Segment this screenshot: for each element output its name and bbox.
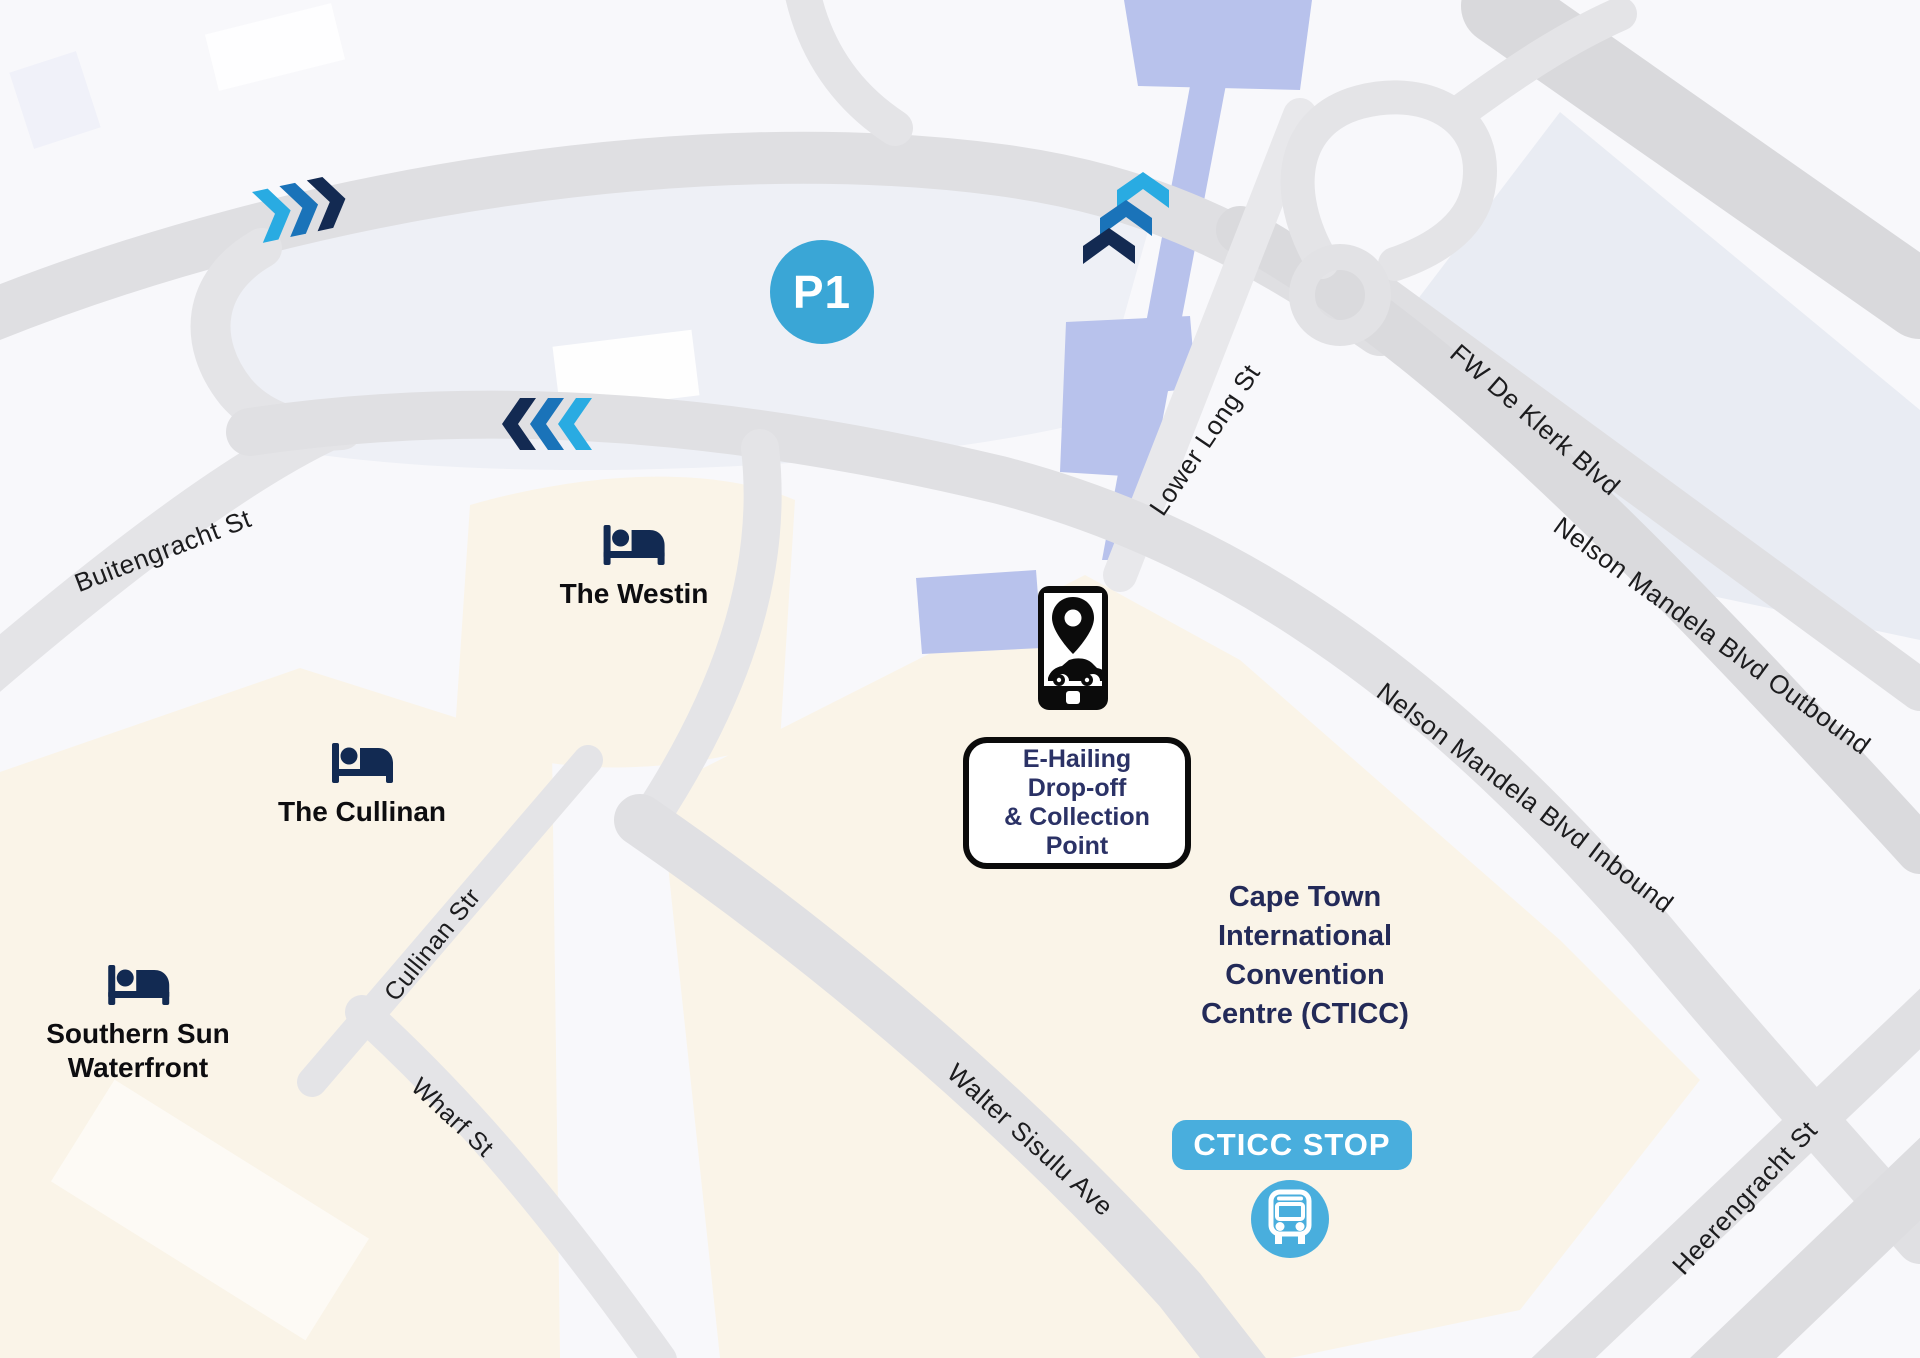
hotel-label-line2: Waterfront: [46, 1051, 230, 1085]
cticc-stop-label: CTICC STOP: [1193, 1127, 1390, 1163]
ehailing-line2: Drop-off: [1004, 774, 1150, 803]
parcel-building-a: [205, 3, 345, 91]
cticc-line4: Centre (CTICC): [1201, 995, 1409, 1034]
bed-icon: [328, 740, 396, 786]
ehailing-line3: & Collection: [1004, 803, 1150, 832]
road-top-stub: [800, 0, 895, 128]
cticc-line2: International: [1201, 917, 1409, 956]
ehailing-callout: E-Hailing Drop-off & Collection Point: [963, 737, 1191, 869]
smartphone-pin-car-icon: [1035, 583, 1111, 713]
parcel-building-b: [9, 51, 100, 149]
cticc-area-label: Cape Town International Convention Centr…: [1201, 878, 1409, 1034]
cticc-line3: Convention: [1201, 956, 1409, 995]
bed-icon: [104, 962, 172, 1008]
bus-icon: [1251, 1180, 1329, 1258]
bed-icon: [600, 522, 668, 568]
hotel-marker-the-westin[interactable]: The Westin: [560, 522, 709, 611]
hotel-label-line1: Southern Sun: [46, 1017, 230, 1051]
ehailing-line1: E-Hailing: [1004, 745, 1150, 774]
cticc-stop-badge[interactable]: CTICC STOP: [1172, 1120, 1412, 1170]
hotel-marker-southern-sun[interactable]: Southern Sun Waterfront: [46, 962, 230, 1085]
hotel-label: The Cullinan: [278, 795, 446, 829]
cticc-map-page: { "map": { "parking_label": "P1", "bus_s…: [0, 0, 1920, 1358]
hotel-label: Southern Sun Waterfront: [46, 1017, 230, 1085]
hotel-label: The Westin: [560, 577, 709, 611]
cticc-line1: Cape Town: [1201, 878, 1409, 917]
parking-p1-label: P1: [793, 265, 851, 319]
map-canvas: [0, 0, 1920, 1358]
parking-p1-marker[interactable]: P1: [770, 240, 874, 344]
bus-stop-marker[interactable]: [1251, 1180, 1329, 1258]
ehailing-marker[interactable]: [1035, 583, 1111, 713]
hotel-marker-the-cullinan[interactable]: The Cullinan: [278, 740, 446, 829]
ehailing-line4: Point: [1004, 832, 1150, 861]
ehailing-callout-text: E-Hailing Drop-off & Collection Point: [1004, 745, 1150, 861]
parcel-periwinkle-low: [916, 570, 1042, 654]
